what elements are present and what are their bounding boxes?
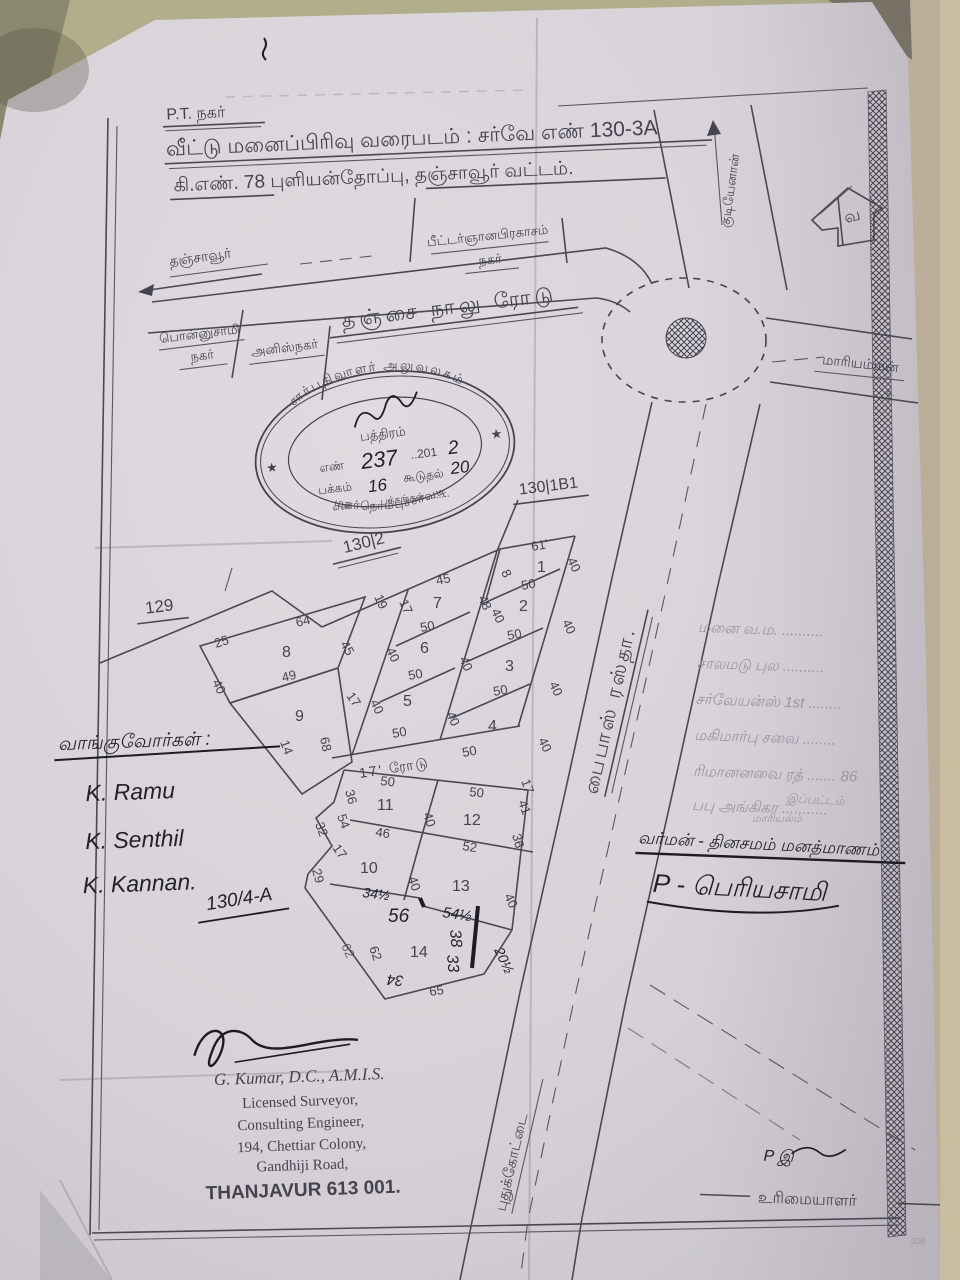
seal-star-right: ★	[490, 426, 503, 442]
locality-ponnusamy-2: நகர்	[190, 346, 215, 364]
plot-1-no: 1	[537, 559, 546, 576]
dim: 38	[446, 929, 464, 948]
mariamman-mark: உ	[885, 387, 895, 399]
plot-2-no: 2	[519, 598, 528, 615]
seal-star-left: ★	[265, 459, 278, 475]
owner-label: உரிமையாளர்	[758, 1190, 858, 1210]
seal-page-value: 16	[367, 475, 389, 496]
plot-3-no: 3	[505, 658, 514, 675]
buyer-signature-2: K. Senthil	[85, 825, 185, 854]
owner-signature: P இ	[763, 1148, 795, 1167]
plot-13-no: 13	[452, 878, 470, 895]
dim: 46	[375, 824, 392, 841]
dim: 56	[388, 906, 410, 927]
dim: 65	[428, 982, 444, 999]
plot-6-no: 6	[420, 640, 429, 657]
plot-9-no: 9	[295, 708, 304, 725]
dim: 50	[391, 724, 408, 741]
survey-map-canvas: P.T. நகர் வீட்டு மனைப்பிரிவு வரைபடம் : ச…	[0, 0, 960, 1280]
scanned-survey-map-photo: { "palette": {"bg_top":"#b2ae8c","bg_rig…	[0, 0, 960, 1280]
corner-mark: 306	[910, 1236, 925, 1247]
dim: 68	[317, 736, 335, 753]
dim: 33	[443, 954, 461, 973]
title-subheading: P.T. நகர்	[166, 104, 226, 124]
dim: 61'	[530, 536, 549, 554]
dim: 50	[520, 576, 537, 593]
plot-11-no: 11	[377, 797, 394, 814]
plot-4-no: 4	[488, 718, 497, 735]
buyer-signature-1: K. Ramu	[85, 777, 176, 806]
dim: 34½	[362, 884, 391, 903]
survey-129: 129	[144, 595, 174, 617]
plot-8-no: 8	[282, 644, 291, 661]
plot-10-no: 10	[360, 860, 378, 877]
dim: 50	[461, 743, 478, 760]
plot-12-no: 12	[463, 812, 481, 829]
seal-no-value: 237	[358, 445, 399, 475]
locality-peter-nagar-2: நகர்	[478, 251, 503, 268]
dim: 45	[435, 570, 452, 588]
dim: 34	[386, 971, 404, 989]
dim: 50	[469, 784, 485, 800]
plot-14-no: 14	[410, 944, 428, 961]
faint-small-2: மாரியல்ம்	[752, 813, 803, 825]
seal-addl-value: 20	[448, 457, 471, 478]
dim: 50	[492, 682, 509, 699]
buyer-signature-3: K. Kannan.	[82, 868, 197, 898]
dim: 50	[380, 773, 396, 789]
dim: 50	[506, 626, 523, 643]
surveyor-line4: Gandhiji Road,	[256, 1156, 348, 1175]
plot-5-no: 5	[403, 693, 412, 710]
dim: 50	[407, 666, 424, 683]
dim: 50	[419, 618, 436, 635]
dim: 52	[462, 838, 479, 855]
plot-7-no: 7	[433, 595, 442, 612]
